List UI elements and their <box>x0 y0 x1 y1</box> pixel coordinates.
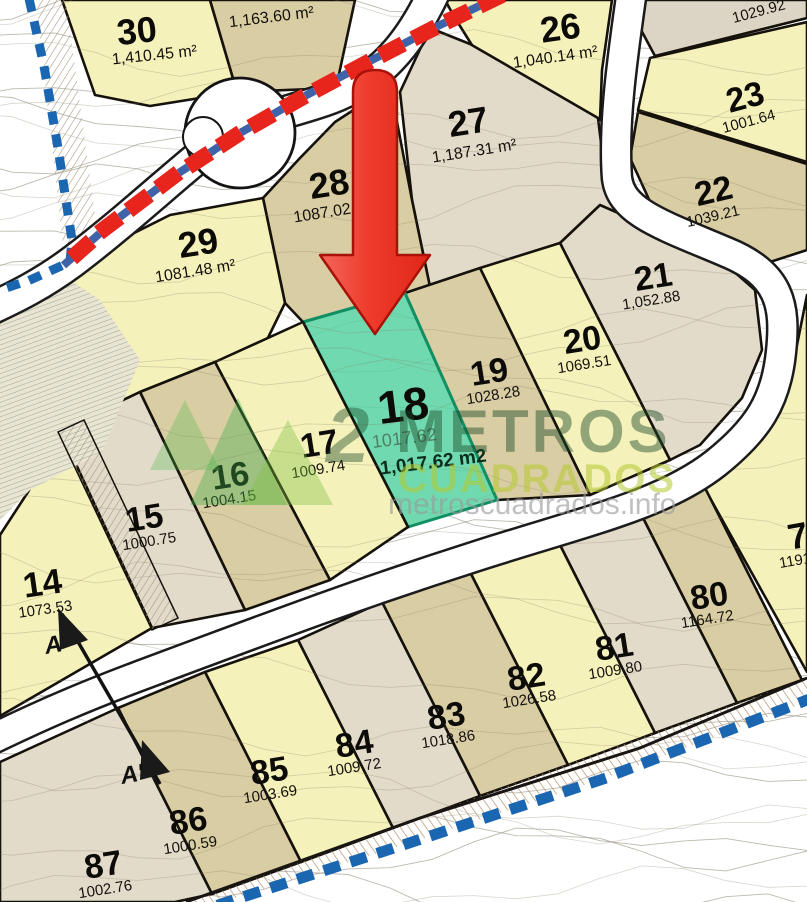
lot-27-number: 27 <box>445 98 491 145</box>
lot-28-number: 28 <box>306 160 352 207</box>
watermark-url: metroscuadrados.info <box>388 488 677 521</box>
watermark-logo-digit: 2 <box>324 391 369 479</box>
site-plan-image: AA' 301,410.45 m²1,163.60 m²261,040.14 m… <box>0 0 807 902</box>
site-plan-map: AA' 301,410.45 m²1,163.60 m²261,040.14 m… <box>0 0 807 902</box>
lot-26-number: 26 <box>538 5 583 51</box>
watermark-text-metros: METROS <box>396 398 671 465</box>
